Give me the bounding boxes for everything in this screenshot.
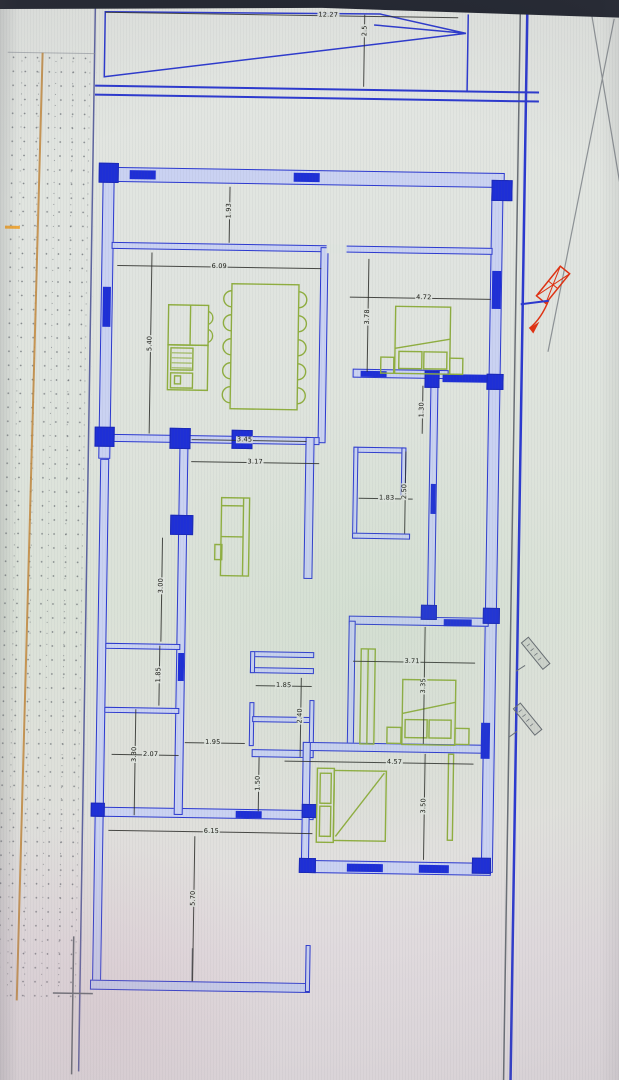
dimension-label-lot-width: 12.27 — [317, 11, 339, 18]
dimension-label-living-width-2: 3.17 — [247, 458, 264, 465]
dimension-line-lot-width — [105, 12, 458, 19]
dimension-label-hall-width: 1.95 — [204, 739, 221, 746]
dimension-label-s-bedroom-depth: 3.50 — [420, 797, 427, 814]
dimension-label-ramp-offset: 2.5 — [361, 24, 368, 37]
dimension-label-patio-width: 6.15 — [203, 828, 220, 835]
dimension-layer: 12.272.51.936.095.404.723.781.303.453.17… — [0, 0, 619, 1080]
dimension-label-left-room-2-depth: 1.85 — [155, 666, 162, 683]
dimension-label-patio-depth: 5.70 — [190, 890, 197, 907]
dimension-label-hall-depth: 1.50 — [254, 775, 261, 792]
dimension-label-left-room-3-width: 2.07 — [142, 751, 159, 758]
cad-floor-plan: 12.272.51.936.095.404.723.781.303.453.17… — [0, 0, 619, 1080]
dimension-label-left-room-1-depth: 3.00 — [158, 577, 165, 594]
dimension-label-dining-depth: 5.40 — [146, 335, 153, 352]
floor-plan-photo: 12.272.51.936.095.404.723.781.303.453.17… — [0, 0, 619, 1080]
dimension-label-dining-width: 6.09 — [211, 263, 228, 270]
dimension-label-closet-width: 1.85 — [275, 682, 292, 689]
dimension-label-closet-depth: 2.40 — [297, 707, 304, 724]
dimension-line-s-bedroom-width — [285, 761, 474, 765]
dimension-label-living-width-1: 3.45 — [236, 436, 253, 443]
dimension-label-s-bedroom-width: 4.57 — [386, 759, 403, 766]
dimension-label-corridor-width: 1.30 — [418, 401, 425, 418]
dimension-label-ne-bedroom-width: 4.72 — [415, 294, 432, 301]
dimension-label-se-bedroom-width: 3.71 — [403, 658, 420, 665]
dimension-label-bath-width: 1.83 — [378, 495, 395, 502]
dimension-line-patio-depth — [192, 836, 195, 981]
dimension-label-bath-depth: 2.50 — [401, 483, 408, 500]
dimension-label-veranda-depth: 1.93 — [225, 202, 232, 219]
dimension-label-ne-bedroom-depth: 3.78 — [364, 308, 371, 325]
dimension-label-se-bedroom-depth: 3.35 — [420, 677, 427, 694]
